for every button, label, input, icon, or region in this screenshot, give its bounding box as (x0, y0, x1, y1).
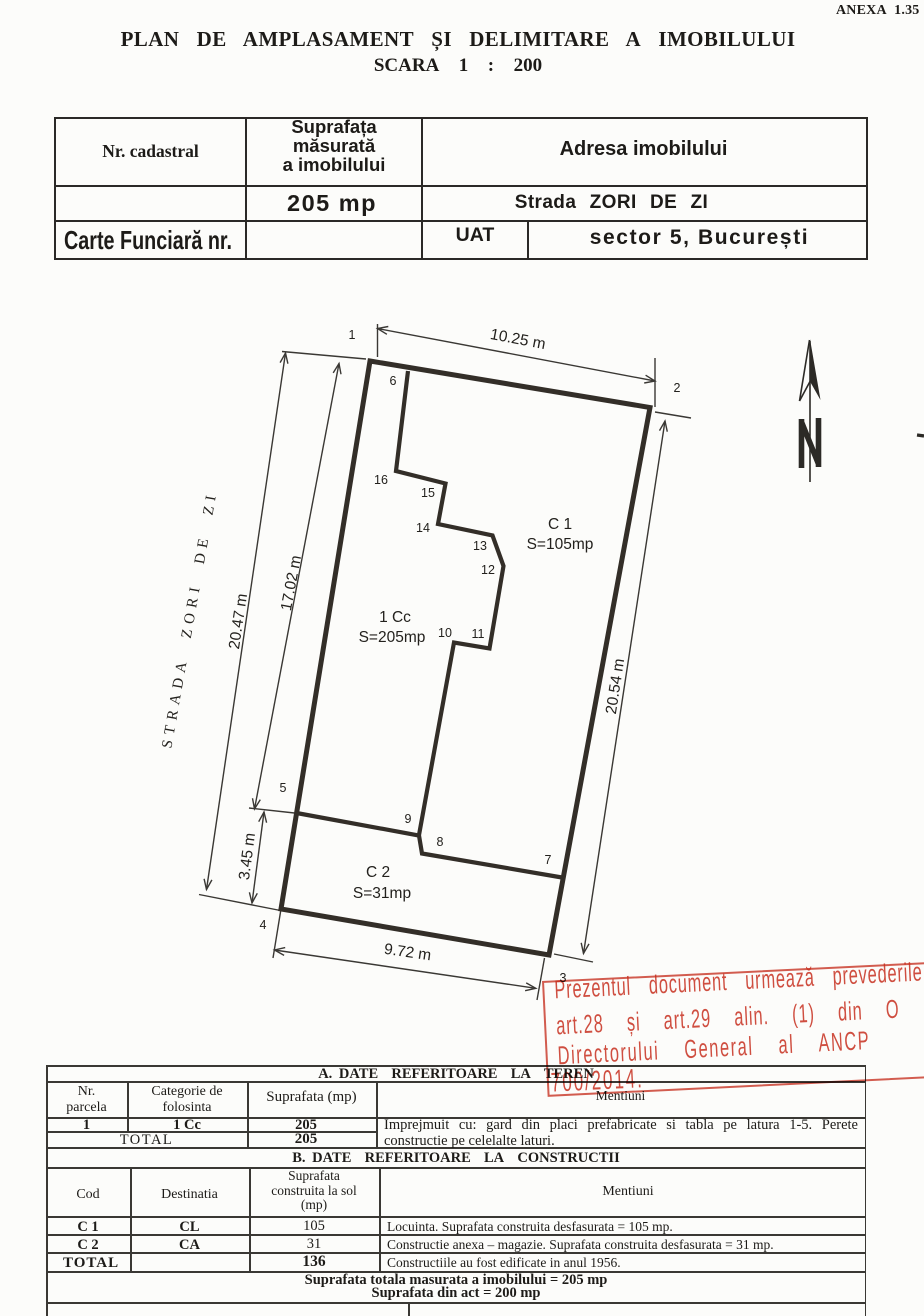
svg-text:9: 9 (405, 812, 412, 826)
svg-text:4: 4 (260, 918, 267, 932)
svg-text:2: 2 (674, 381, 681, 395)
svg-text:17.02 m: 17.02 m (278, 554, 305, 612)
svg-text:S=31mp: S=31mp (353, 885, 411, 902)
svg-text:12: 12 (481, 563, 495, 577)
svg-text:S=105mp: S=105mp (527, 536, 594, 553)
svg-text:10.25 m: 10.25 m (489, 326, 547, 353)
svg-text:15: 15 (421, 486, 435, 500)
svg-text:1 Cc: 1 Cc (379, 609, 411, 626)
svg-text:14: 14 (416, 521, 430, 535)
svg-text:9.72 m: 9.72 m (383, 941, 432, 965)
svg-text:STRADA ZORI DE ZI: STRADA ZORI DE ZI (159, 489, 220, 749)
svg-text:5: 5 (280, 781, 287, 795)
svg-text:C 2: C 2 (366, 864, 390, 881)
svg-text:10: 10 (438, 626, 452, 640)
svg-text:1: 1 (349, 328, 356, 342)
svg-text:6: 6 (390, 374, 397, 388)
svg-text:20.47 m: 20.47 m (226, 592, 251, 650)
svg-text:8: 8 (437, 835, 444, 849)
svg-text:S=205mp: S=205mp (359, 629, 426, 646)
svg-text:13: 13 (473, 539, 487, 553)
svg-text:11: 11 (472, 627, 485, 641)
svg-text:C 1: C 1 (548, 516, 572, 533)
svg-text:7: 7 (545, 853, 552, 867)
svg-text:16: 16 (374, 473, 388, 487)
